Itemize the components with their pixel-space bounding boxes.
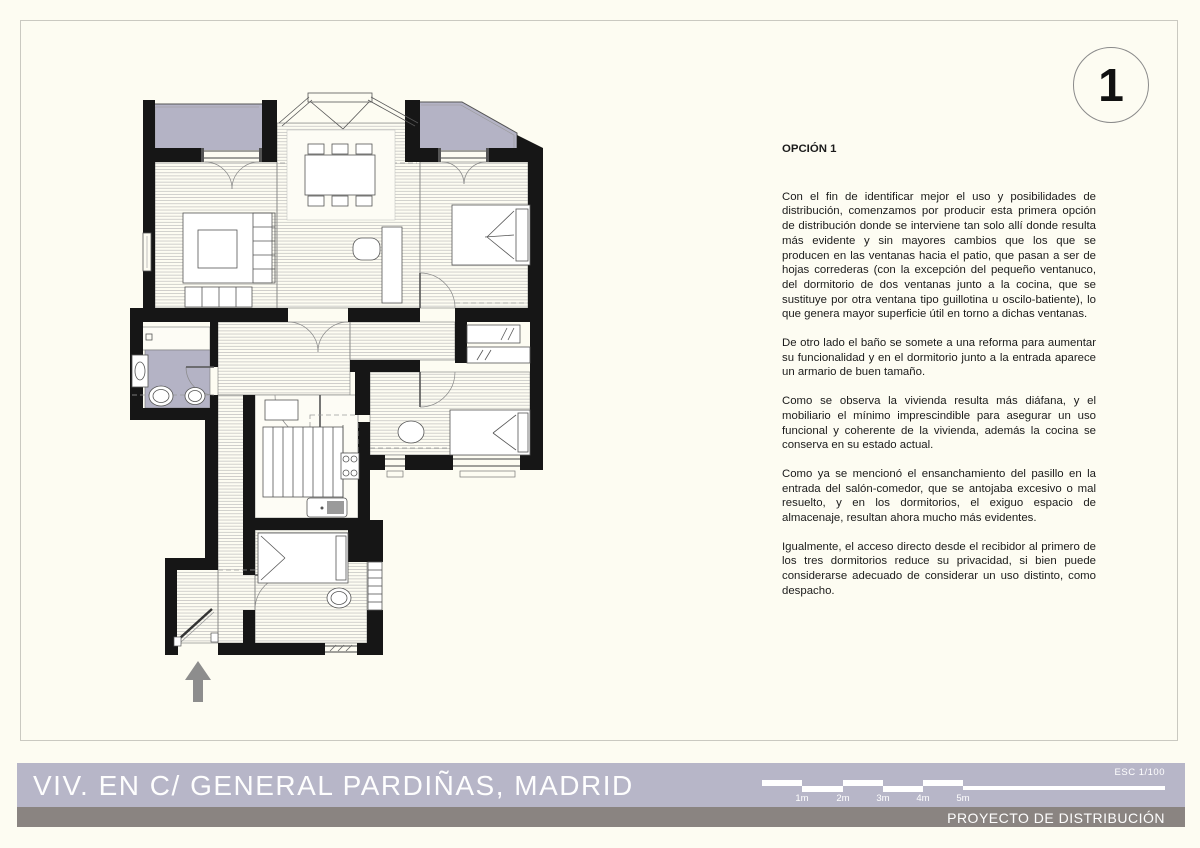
pouf xyxy=(353,238,380,260)
scale-tick: 4m xyxy=(916,793,929,804)
armchair xyxy=(398,421,424,443)
sheet-number: 1 xyxy=(1098,58,1124,112)
hall-extension-floor xyxy=(350,322,455,360)
chair xyxy=(308,196,324,206)
project-subtitle: PROYECTO DE DISTRIBUCIÓN xyxy=(947,810,1165,826)
title-bar: VIV. EN C/ GENERAL PARDIÑAS, MADRID ESC … xyxy=(17,763,1185,807)
sideboard-tall xyxy=(382,227,402,303)
chair xyxy=(356,144,372,154)
terrace-top-left xyxy=(152,104,262,150)
scale-segment xyxy=(883,786,923,792)
chair xyxy=(332,196,348,206)
floor-plan xyxy=(115,85,565,715)
scale-segment xyxy=(963,786,1165,790)
closet2 xyxy=(467,347,530,363)
sheet: { "sheet": { "number": "1" }, "notes": {… xyxy=(0,0,1200,848)
notes-column: OPCIÓN 1 Con el fin de identificar mejor… xyxy=(782,142,1096,613)
scale-tick: 5m xyxy=(956,793,969,804)
chair xyxy=(332,144,348,154)
entrance-floor xyxy=(173,560,218,643)
chair xyxy=(308,144,324,154)
scale-segment xyxy=(843,780,883,786)
scale-segment xyxy=(923,780,963,786)
graphic-scale-bar: 1m 2m 3m 4m 5m xyxy=(17,763,1185,807)
sideboard-low xyxy=(185,287,252,307)
fridge xyxy=(265,400,298,420)
washbasin xyxy=(132,355,148,387)
bed1 xyxy=(452,205,530,265)
closet1 xyxy=(467,325,520,343)
scale-segment xyxy=(762,780,802,786)
note-paragraph: Como ya se mencionó el ensanchamiento de… xyxy=(782,467,1096,526)
option-heading: OPCIÓN 1 xyxy=(782,142,1096,157)
scale-tick: 1m xyxy=(795,793,808,804)
note-paragraph: Como se observa la vivienda resulta más … xyxy=(782,394,1096,453)
bed3 xyxy=(258,533,348,583)
subtitle-bar: PROYECTO DE DISTRIBUCIÓN xyxy=(17,807,1185,827)
scale-segment xyxy=(802,786,843,792)
bidet xyxy=(185,388,205,405)
scale-tick: 2m xyxy=(836,793,849,804)
note-paragraph: De otro lado el baño se somete a una ref… xyxy=(782,336,1096,380)
sheet-number-badge: 1 xyxy=(1073,47,1149,123)
note-paragraph: Igualmente, el acceso directo desde el r… xyxy=(782,540,1096,599)
chair xyxy=(356,196,372,206)
entrance-arrow-icon xyxy=(185,661,211,702)
note-paragraph: Con el fin de identificar mejor el uso y… xyxy=(782,190,1096,322)
sofa-group xyxy=(183,213,272,283)
scale-tick: 3m xyxy=(876,793,889,804)
hall-floor xyxy=(218,322,350,395)
dining-table xyxy=(305,155,375,195)
